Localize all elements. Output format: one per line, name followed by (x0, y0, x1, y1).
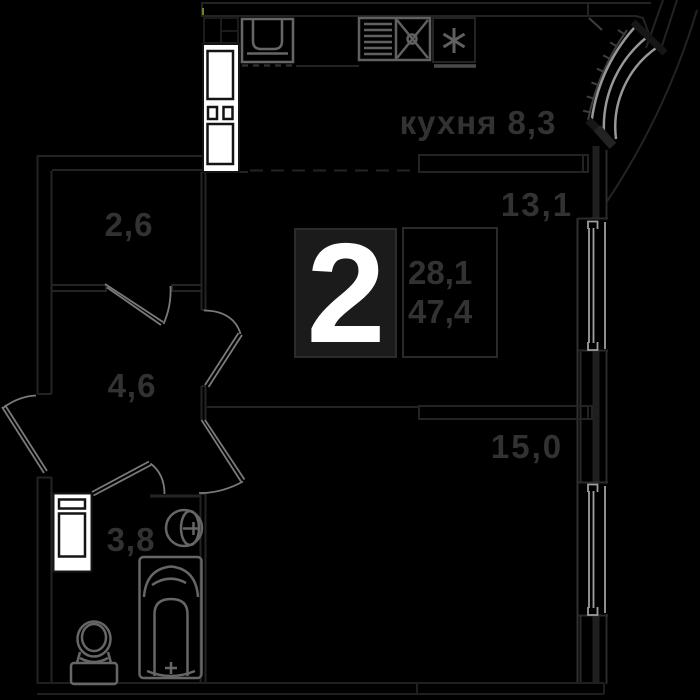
svg-text:2: 2 (307, 214, 386, 373)
svg-text:4,6: 4,6 (108, 367, 157, 404)
svg-text:28,1: 28,1 (408, 254, 472, 291)
svg-text:3,8: 3,8 (107, 521, 156, 558)
svg-text:2,6: 2,6 (105, 206, 154, 243)
svg-text:47,4: 47,4 (408, 293, 473, 330)
svg-text:15,0: 15,0 (491, 428, 563, 465)
svg-text:кухня 8,3: кухня 8,3 (400, 104, 557, 141)
svg-text:13,1: 13,1 (501, 186, 573, 223)
